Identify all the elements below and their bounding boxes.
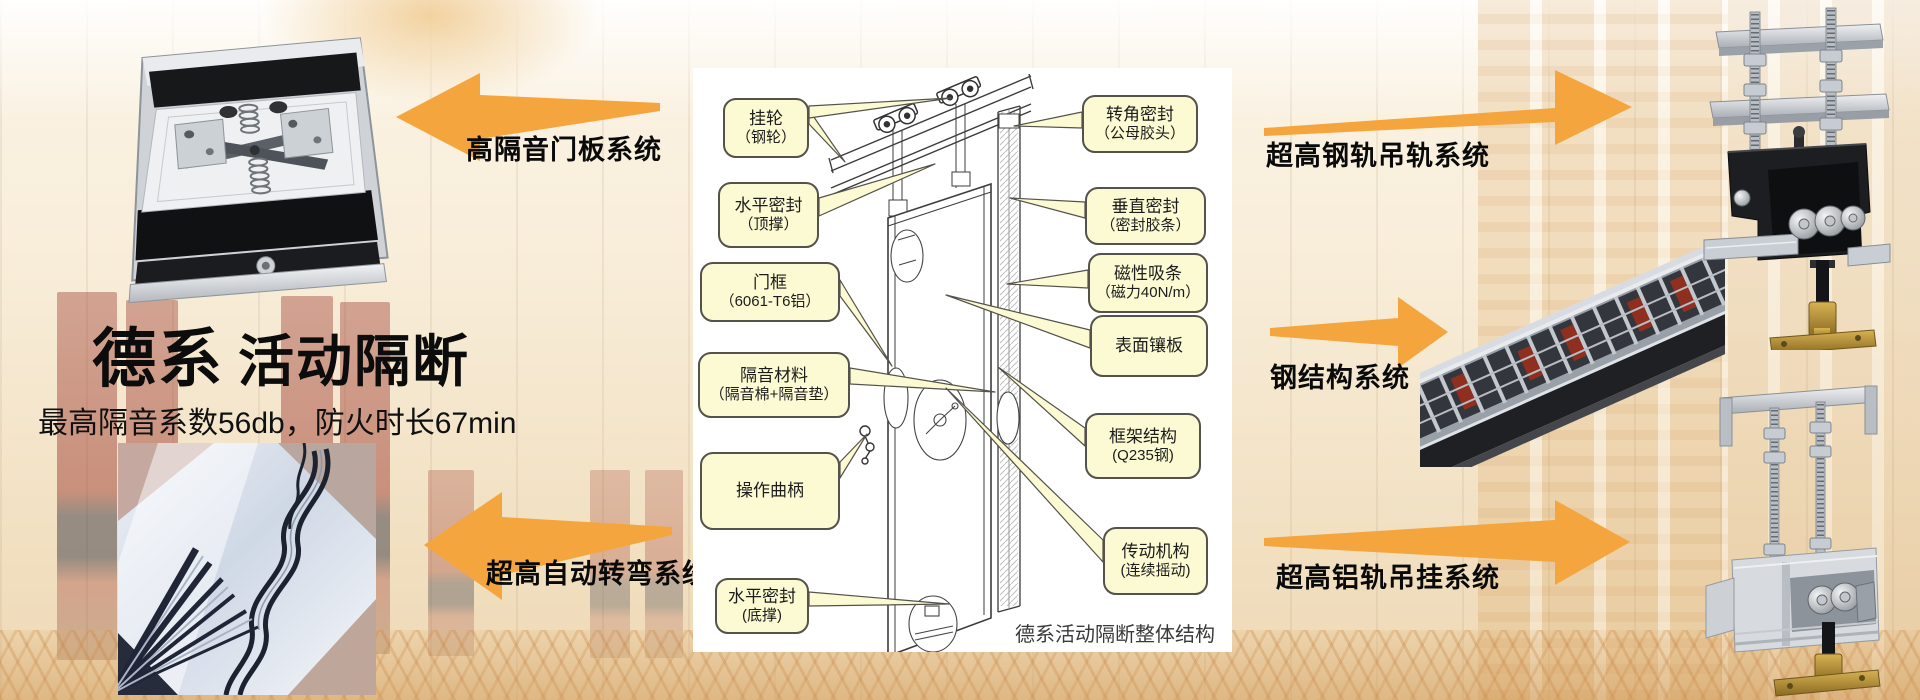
callout-transmission: 传动机构 (连续摇动) bbox=[1103, 527, 1208, 595]
label-auto-turn-system: 超高自动转弯系统 bbox=[486, 552, 710, 591]
door-panel-mechanism-image bbox=[112, 10, 404, 305]
callout-magnetic-strip: 磁性吸条 （磁力40N/m） bbox=[1088, 253, 1208, 313]
callout-line: （钢轮） bbox=[736, 129, 796, 148]
label-alu-rail-system: 超高铝轨吊挂系统 bbox=[1276, 556, 1500, 595]
callout-operating-crank: 操作曲柄 bbox=[700, 452, 840, 530]
callout-line: 磁性吸条 bbox=[1114, 263, 1182, 284]
callout-line: （6061-T6铝） bbox=[720, 293, 821, 312]
callout-line: 传动机构 bbox=[1122, 541, 1190, 562]
callout-vertical-seal: 垂直密封 （密封胶条） bbox=[1085, 187, 1206, 245]
photo-steel-structure bbox=[1420, 222, 1725, 467]
subtitle: 最高隔音系数56db，防火时长67min bbox=[38, 398, 516, 442]
callout-horizontal-seal-bottom: 水平密封 (底撑) bbox=[715, 578, 809, 634]
label-steel-rail-system: 超高钢轨吊轨系统 bbox=[1266, 134, 1490, 173]
callout-line: 表面镶板 bbox=[1115, 335, 1183, 356]
callout-line: 框架结构 bbox=[1109, 426, 1177, 447]
callout-line: （公母胶头） bbox=[1095, 125, 1185, 144]
title: 德系 活动隔断 bbox=[92, 308, 470, 400]
callout-hanging-wheel: 挂轮 （钢轮） bbox=[723, 98, 809, 158]
callout-line: (底撑) bbox=[742, 607, 782, 626]
callout-line: （顶撑） bbox=[738, 216, 798, 235]
title-brand: 德系 bbox=[92, 308, 224, 400]
callout-horizontal-seal-top: 水平密封 （顶撑） bbox=[718, 182, 819, 248]
diagram-caption: 德系活动隔断整体结构 bbox=[1015, 618, 1215, 647]
callout-line: 水平密封 bbox=[728, 586, 796, 607]
steel-rail-trolley-image bbox=[1698, 2, 1896, 350]
callout-line: 挂轮 bbox=[749, 108, 783, 129]
callout-line: (Q235钢) bbox=[1112, 447, 1174, 466]
callout-line: （隔音棉+隔音垫） bbox=[710, 386, 839, 405]
callout-line: （密封胶条） bbox=[1100, 217, 1190, 236]
photo-door-panel-mechanism bbox=[112, 10, 404, 305]
callout-line: 操作曲柄 bbox=[736, 480, 804, 501]
callout-line: 垂直密封 bbox=[1112, 196, 1180, 217]
label-steel-structure-system: 钢结构系统 bbox=[1270, 356, 1410, 395]
callout-line: （磁力40N/m） bbox=[1096, 284, 1200, 303]
slide: 高隔音门板系统 超高自动转弯系统 超高钢轨吊轨系统 钢结构系统 超高铝轨吊挂系统… bbox=[0, 0, 1920, 700]
photo-alu-rail-trolley bbox=[1698, 372, 1896, 698]
title-rest: 活动隔断 bbox=[238, 317, 470, 398]
callout-corner-seal: 转角密封 （公母胶头） bbox=[1082, 95, 1198, 153]
callout-frame-structure: 框架结构 (Q235钢) bbox=[1085, 413, 1201, 479]
photo-steel-rail-trolley bbox=[1698, 2, 1896, 350]
alu-rail-trolley-image bbox=[1698, 372, 1896, 698]
curved-track-image bbox=[118, 443, 376, 695]
callout-line: (连续摇动) bbox=[1121, 562, 1191, 581]
callout-line: 隔音材料 bbox=[740, 365, 808, 386]
diagram-panel: 挂轮 （钢轮） 水平密封 （顶撑） 门框 （6061-T6铝） 隔音材料 （隔音… bbox=[693, 68, 1232, 652]
photo-curved-track bbox=[118, 443, 376, 695]
label-door-panel-system: 高隔音门板系统 bbox=[466, 128, 662, 167]
callout-line: 门框 bbox=[753, 272, 787, 293]
callout-surface-panel: 表面镶板 bbox=[1090, 315, 1208, 377]
callout-line: 转角密封 bbox=[1106, 104, 1174, 125]
steel-structure-image bbox=[1420, 222, 1725, 467]
callout-line: 水平密封 bbox=[735, 195, 803, 216]
callout-door-frame: 门框 （6061-T6铝） bbox=[700, 262, 840, 322]
callout-sound-insulation: 隔音材料 （隔音棉+隔音垫） bbox=[698, 352, 850, 418]
